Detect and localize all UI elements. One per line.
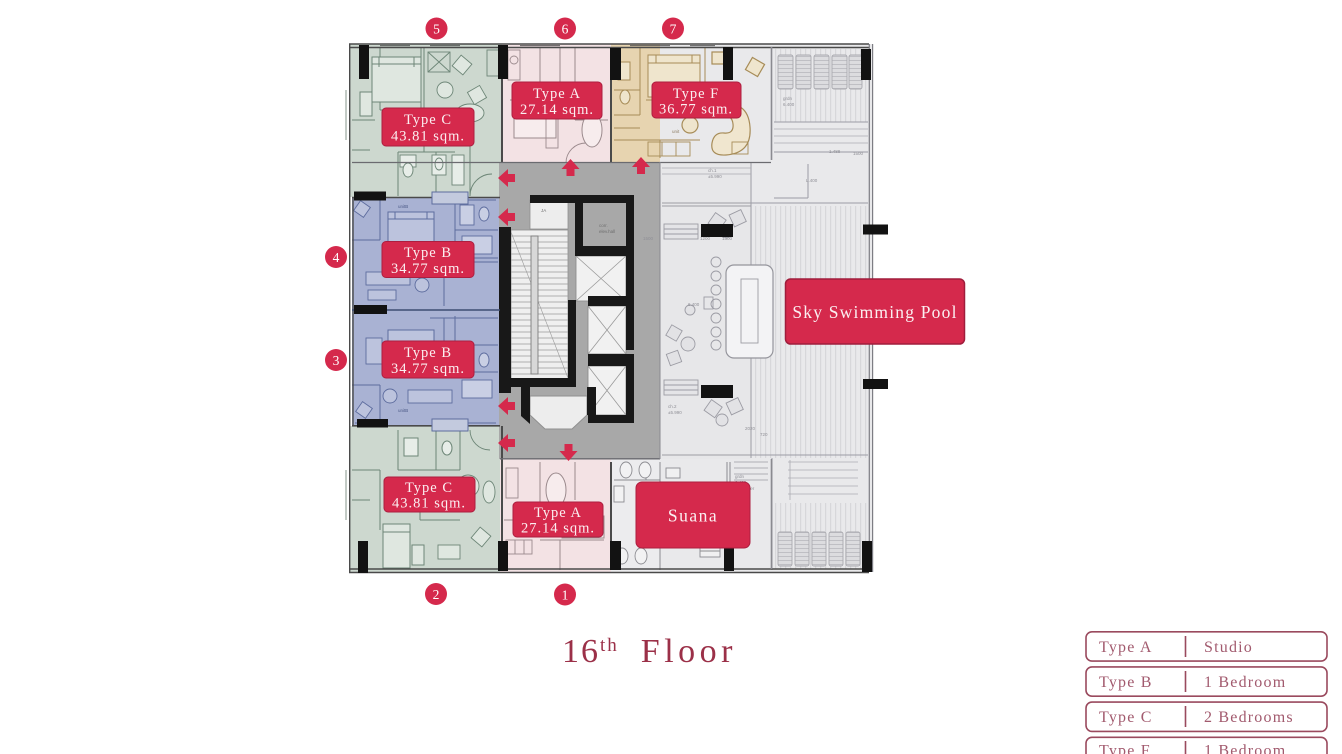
svg-text:5: 5 [433, 22, 440, 37]
svg-text:Suana: Suana [668, 506, 718, 526]
svg-text:unitB: unitB [398, 408, 408, 413]
svg-text:2 Bedrooms: 2 Bedrooms [1204, 709, 1294, 726]
svg-text:6.400: 6.400 [688, 302, 700, 307]
svg-text:Type B: Type B [404, 245, 452, 261]
svg-text:2020: 2020 [745, 426, 756, 431]
svg-text:43.81 sqm.: 43.81 sqm. [391, 129, 465, 145]
svg-text:16thFloor: 16thFloor [562, 633, 737, 670]
svg-text:ch.1: ch.1 [708, 168, 717, 173]
svg-text:grdn: grdn [735, 474, 745, 479]
svg-text:6.400: 6.400 [783, 102, 795, 107]
svg-text:Type F: Type F [673, 86, 719, 102]
svg-text:1: 1 [562, 588, 569, 603]
svg-text:Studio: Studio [1204, 639, 1253, 656]
svg-text:Type C: Type C [1099, 709, 1153, 726]
svg-text:720: 720 [760, 432, 768, 437]
svg-text:36.77 sqm.: 36.77 sqm. [659, 102, 733, 118]
svg-text:Type C: Type C [404, 112, 452, 128]
svg-text:±5.990: ±5.990 [708, 174, 722, 179]
svg-text:corr.: corr. [599, 223, 608, 228]
svg-text:4: 4 [333, 250, 340, 265]
svg-text:Type A: Type A [1099, 639, 1153, 656]
svg-text:1500: 1500 [643, 236, 654, 241]
svg-text:1 Bedroom: 1 Bedroom [1204, 674, 1286, 691]
svg-text:27.14 sqm.: 27.14 sqm. [520, 102, 594, 118]
svg-text:grdn: grdn [783, 96, 793, 101]
svg-text:Type B: Type B [1099, 674, 1153, 691]
svg-text:34.77 sqm.: 34.77 sqm. [391, 261, 465, 277]
svg-text:43.81 sqm.: 43.81 sqm. [392, 496, 466, 512]
svg-text:6: 6 [562, 22, 569, 37]
svg-text:ch.2: ch.2 [668, 404, 677, 409]
svg-text:27.14 sqm.: 27.14 sqm. [521, 521, 595, 537]
svg-text:1 Bedroom: 1 Bedroom [1204, 743, 1286, 754]
svg-text:Type F: Type F [1099, 743, 1151, 754]
svg-text:unit: unit [672, 129, 680, 134]
svg-text:L.400: L.400 [806, 178, 818, 183]
svg-text:Type A: Type A [534, 505, 582, 521]
svg-text:1.488: 1.488 [829, 149, 841, 154]
svg-text:1500: 1500 [853, 151, 864, 156]
svg-text:unitB: unitB [398, 204, 408, 209]
svg-text:Type A: Type A [533, 86, 581, 102]
svg-text:2: 2 [433, 587, 440, 602]
svg-text:34.77 sqm.: 34.77 sqm. [391, 361, 465, 377]
svg-text:Sky Swimming Pool: Sky Swimming Pool [792, 302, 957, 322]
svg-text:JA: JA [541, 208, 546, 213]
svg-text:±5.990: ±5.990 [668, 410, 682, 415]
svg-text:Type B: Type B [404, 345, 452, 361]
svg-text:7: 7 [670, 22, 677, 37]
svg-text:elev.hall: elev.hall [599, 229, 615, 234]
svg-text:Type C: Type C [405, 480, 453, 496]
svg-text:3: 3 [333, 353, 340, 368]
